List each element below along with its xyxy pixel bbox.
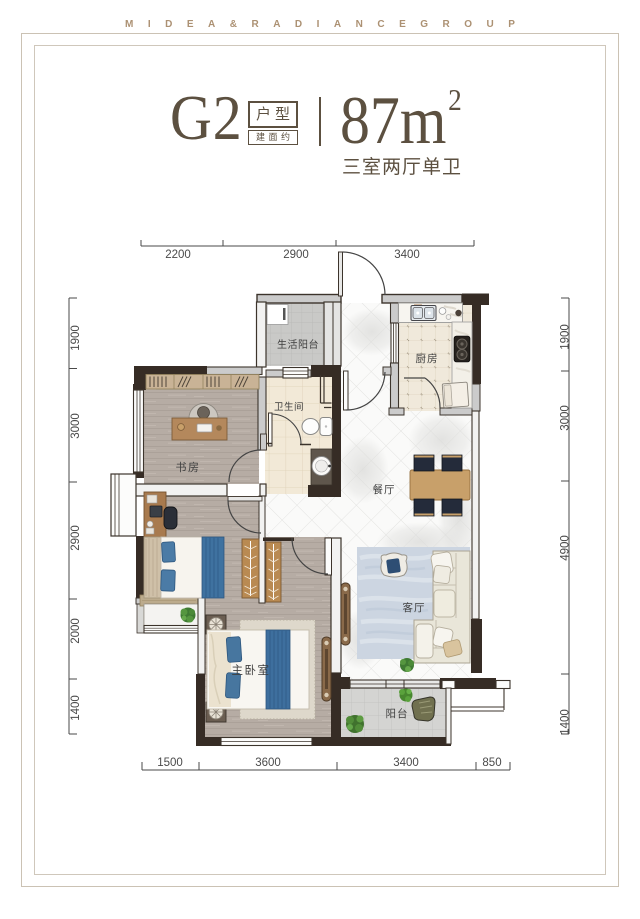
svg-text:1900: 1900 (560, 324, 572, 350)
svg-text:2900: 2900 (283, 249, 309, 261)
svg-text:1400: 1400 (70, 695, 82, 721)
svg-text:4900: 4900 (560, 535, 572, 561)
svg-text:1400: 1400 (560, 709, 572, 735)
svg-text:3400: 3400 (394, 249, 420, 261)
svg-text:客厅: 客厅 (403, 601, 426, 614)
svg-text:主卧室: 主卧室 (232, 663, 271, 677)
svg-text:2900: 2900 (70, 525, 82, 551)
svg-text:卫生间: 卫生间 (274, 401, 304, 413)
svg-text:2200: 2200 (165, 249, 191, 261)
svg-text:3400: 3400 (393, 757, 419, 769)
svg-text:厨房: 厨房 (416, 352, 439, 365)
svg-text:3600: 3600 (255, 757, 281, 769)
svg-text:书房: 书房 (176, 461, 201, 474)
svg-text:阳台: 阳台 (386, 707, 409, 720)
svg-text:3000: 3000 (70, 413, 82, 439)
svg-text:餐厅: 餐厅 (373, 483, 396, 496)
svg-text:850: 850 (482, 757, 501, 769)
svg-text:1900: 1900 (70, 325, 82, 351)
svg-text:3000: 3000 (560, 405, 572, 431)
svg-text:生活阳台: 生活阳台 (277, 338, 319, 351)
svg-text:1500: 1500 (157, 757, 183, 769)
svg-text:2000: 2000 (70, 618, 82, 644)
